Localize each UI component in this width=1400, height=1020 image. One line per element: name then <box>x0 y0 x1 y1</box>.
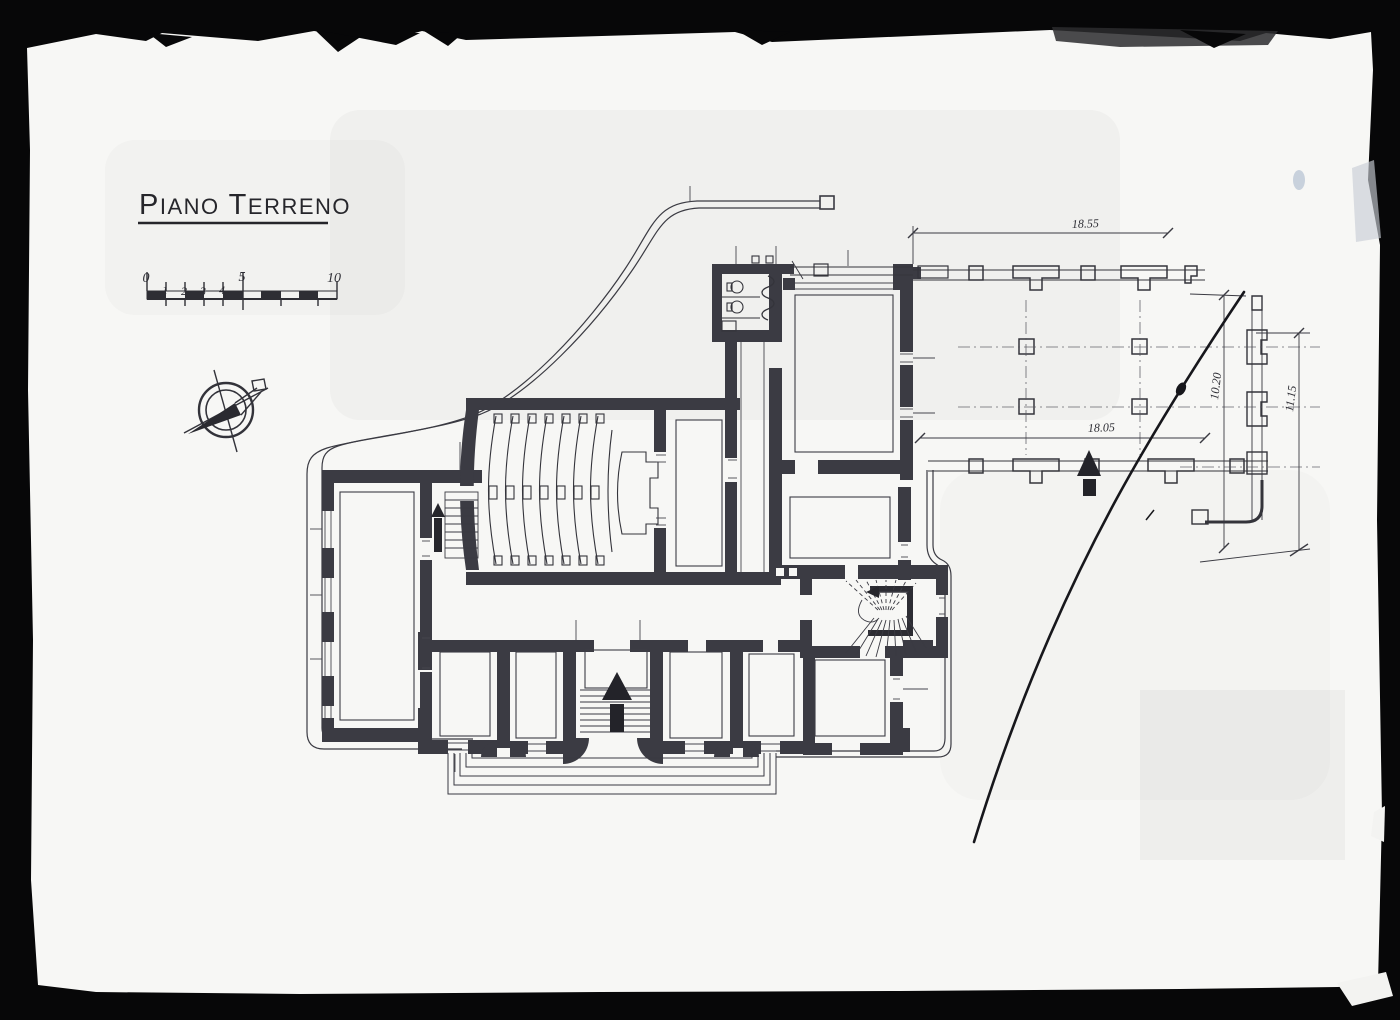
scale-label-1: 1 <box>162 283 168 297</box>
photographic-plate: PIANO TERRENO 0 1 2 3 4 5 10 <box>0 0 1400 1020</box>
title-initial-2: T <box>220 189 248 221</box>
scale-label-2: 2 <box>181 284 187 298</box>
page-title: PIANO TERRENO <box>139 189 351 221</box>
floor-plan-photo: PIANO TERRENO 0 1 2 3 4 5 10 <box>0 0 1400 1020</box>
scale-label-5: 5 <box>239 270 246 285</box>
stair-door-opening <box>460 486 484 501</box>
title-part-1: IANO <box>160 194 220 219</box>
title-part-2: ERRENO <box>248 194 351 219</box>
scale-label-3: 3 <box>199 284 206 298</box>
wall-niche <box>776 568 784 576</box>
title-initial-1: P <box>139 189 160 221</box>
dim-portico-top: 18.55 <box>1072 216 1099 231</box>
wall-niche <box>789 568 797 576</box>
drawing-title: PIANO TERRENO <box>138 189 351 223</box>
dim-portico-inner: 18.05 <box>1088 420 1115 435</box>
scale-label-0: 0 <box>143 271 150 286</box>
scale-label-4: 4 <box>219 283 225 297</box>
scale-label-10: 10 <box>327 271 341 286</box>
